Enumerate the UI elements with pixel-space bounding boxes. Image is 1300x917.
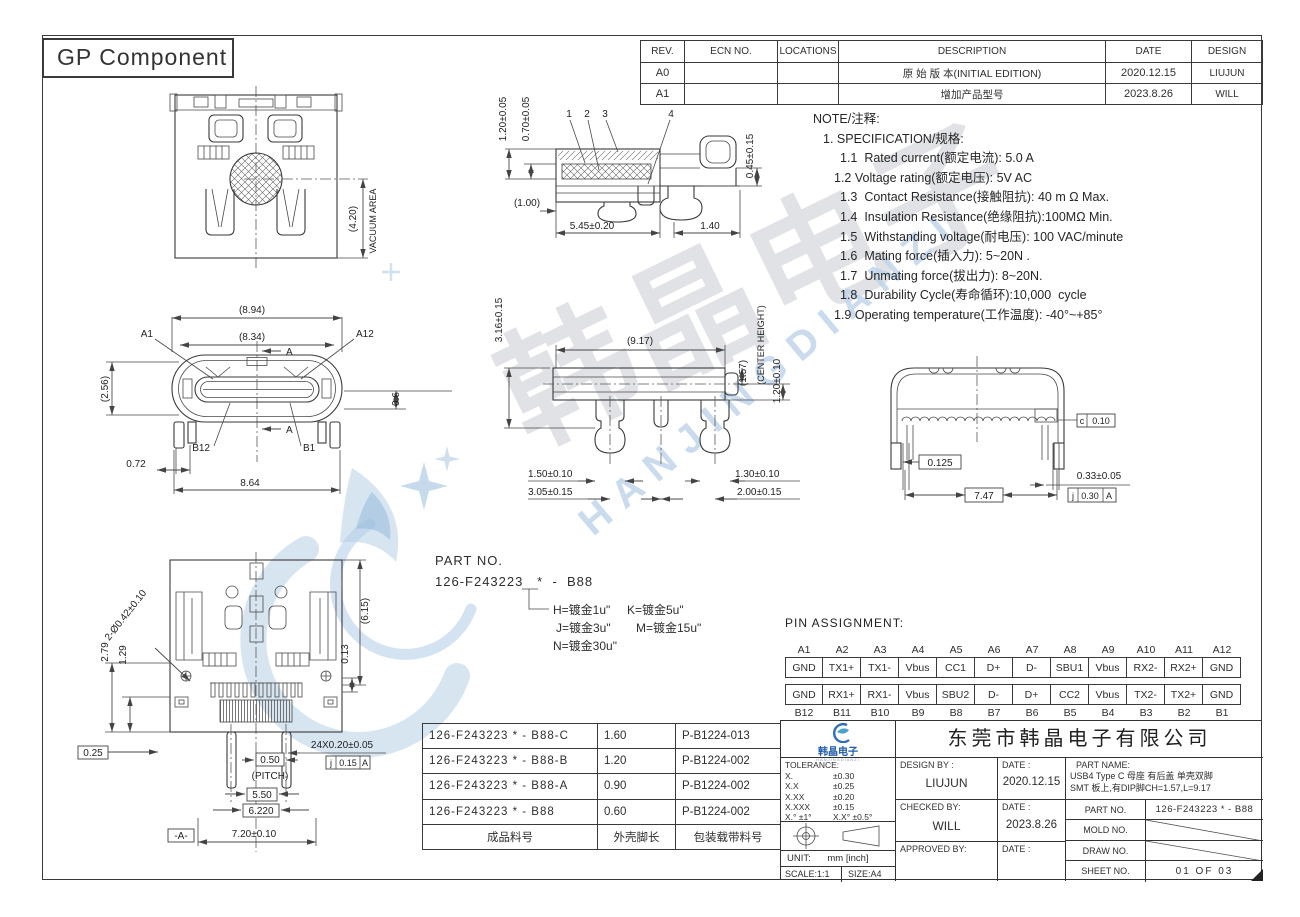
pin-cell: CC2 xyxy=(1051,684,1089,705)
approved-date-cell: DATE : xyxy=(998,841,1066,881)
design-value: LIUJUN xyxy=(1192,63,1263,84)
pin-cell: RX2+ xyxy=(1165,657,1203,678)
pin-cell: TX2+ xyxy=(1165,684,1203,705)
checked-by-cell: CHECKED BY: WILL xyxy=(896,799,998,841)
pin-cell: Vbus xyxy=(899,657,937,678)
material-part-no: 126-F243223 * - B88-B xyxy=(423,749,598,774)
ecn-value xyxy=(685,84,778,105)
sheet-no-label: SHEET NO. xyxy=(1066,861,1146,882)
pin-row-b-labels: B12B11B10B9B8B7B6B5B4B3B2B1 xyxy=(785,707,1243,720)
pin-b1-label: B1 xyxy=(303,443,316,454)
date-header: DATE xyxy=(1106,41,1192,63)
pin-label: A10 xyxy=(1127,644,1165,657)
dim-8-94: (8.94) xyxy=(239,305,265,316)
pin-a12-label: A12 xyxy=(356,329,374,340)
pin-label: A2 xyxy=(823,644,861,657)
dim-0-6: 0.6 xyxy=(391,392,402,406)
plating-option: H=镀金1u" xyxy=(553,601,610,618)
tol-value: ±0.25 xyxy=(833,781,854,791)
position-datum: A xyxy=(362,758,368,768)
callout-1: 1 xyxy=(566,109,572,120)
draw-no-label: DRAW NO. xyxy=(1066,841,1146,861)
revision-header-row: REV. ECN NO. LOCATIONS DESCRIPTION DATE … xyxy=(641,41,1263,63)
callout-2: 2 xyxy=(584,109,590,120)
note-item: 1.2 Voltage rating(额定电压): 5V AC xyxy=(813,169,1193,189)
design-value: WILL xyxy=(1192,84,1263,105)
dim-7-20: 7.20±0.10 xyxy=(232,829,277,840)
date-label: DATE : xyxy=(998,800,1065,812)
material-part-no: 126-F243223 * - B88-A xyxy=(423,774,598,799)
ecn-value xyxy=(685,63,778,84)
design-date-cell: DATE : 2020.12.15 xyxy=(998,758,1066,799)
top-view: (4.20) VACUUM AREA xyxy=(170,86,378,268)
dim-5-45: 5.45±0.20 xyxy=(570,221,615,232)
draw-no-blank xyxy=(1146,841,1263,861)
section-mark-top: A xyxy=(286,347,293,358)
part-no-row: PART NO. 126-F243223 * - B88 xyxy=(1066,799,1263,819)
scale-size-row: SCALE:1:1SIZE:A4 xyxy=(781,866,896,882)
design-by-value: LIUJUN xyxy=(896,776,997,790)
part-no-value: 126-F243223 * - B88 xyxy=(435,574,593,589)
tolerance-row: X.XXX±0.15 xyxy=(785,802,872,812)
company-name: 东莞市韩晶电子有限公司 xyxy=(896,721,1263,758)
dim-1-50: 1.50±0.10 xyxy=(528,469,573,480)
part-no-label: PART NO. xyxy=(435,553,593,568)
pin-cell: D- xyxy=(975,684,1013,705)
dim-2-56: (2.56) xyxy=(100,376,111,402)
ecn-header: ECN NO. xyxy=(685,41,778,63)
flatness-symbol: c xyxy=(1080,416,1085,426)
dim-5-50: 5.50 xyxy=(252,790,272,801)
pin-cell: TX1- xyxy=(861,657,899,678)
dim-8-34: (8.34) xyxy=(239,332,265,343)
design-by-cell: DESIGN BY : LIUJUN xyxy=(896,758,998,799)
plating-option: M=镀金15u" xyxy=(636,619,701,636)
position-value: 0.30 xyxy=(1081,491,1099,501)
dim-8-64: 8.64 xyxy=(240,478,260,489)
center-height-label: (CENTER HEIGHT) xyxy=(756,305,766,385)
locations-header: LOCATIONS xyxy=(778,41,839,63)
title-block: 韩晶电子 HANJINGDIANZI 东莞市韩晶电子有限公司 TOLERANCE… xyxy=(780,720,1262,880)
loc-value xyxy=(778,63,839,84)
date-label: DATE : xyxy=(998,842,1065,854)
note-item: 1.7 Unmating force(拔出力): 8~20N. xyxy=(813,267,1193,287)
pin-cell: CC1 xyxy=(937,657,975,678)
checked-date-value: 2023.8.26 xyxy=(998,819,1065,831)
pin-cell: D+ xyxy=(975,657,1013,678)
front-view: (8.94) (8.34) A1 A12 A A xyxy=(100,305,452,494)
approved-by-label: APPROVED BY: xyxy=(896,842,997,854)
pin-cell: GND xyxy=(785,657,823,678)
pitch-label: (PITCH) xyxy=(252,771,289,782)
pin-cell: GND xyxy=(1203,657,1241,678)
dim-0-72: 0.72 xyxy=(126,459,146,470)
pin-cell: Vbus xyxy=(1089,657,1127,678)
part-number-legend: PART NO. 126-F243223 * - B88 xyxy=(435,553,593,589)
pin-cell: GND xyxy=(1203,684,1241,705)
pin-label: A6 xyxy=(975,644,1013,657)
pin-label: A3 xyxy=(861,644,899,657)
pin-label: A5 xyxy=(937,644,975,657)
table-row: 126-F243223 * - B88-B 1.20 P-B1224-002 xyxy=(423,749,781,774)
dim-3-16: 3.16±0.15 xyxy=(494,297,505,342)
tolerance-label: TOLERANCE: xyxy=(785,760,839,770)
section-mark-bottom: A xyxy=(286,425,293,436)
page-title: GP Component xyxy=(42,38,234,78)
note-item: 1.9 Operating temperature(工作温度): -40°~+8… xyxy=(813,306,1193,326)
dim-1-29: 1.29 xyxy=(118,645,129,665)
table-row: A0 原 始 版 本(INITIAL EDITION) 2020.12.15 L… xyxy=(641,63,1263,84)
dim-2-79: 2.79 xyxy=(100,642,111,662)
date-value: 2023.8.26 xyxy=(1106,84,1192,105)
pin-label: B8 xyxy=(937,707,975,720)
part-no-value: 126-F243223 * - B88 xyxy=(1146,800,1263,820)
pin-cell: D- xyxy=(1013,657,1051,678)
dim-0-125: 0.125 xyxy=(927,458,952,469)
company-logo-icon xyxy=(781,721,896,743)
tol-label: X. xyxy=(785,771,833,781)
pin-assignment-block: PIN ASSIGNMENT: A1A2A3A4A5A6A7A8A9A10A11… xyxy=(785,616,1243,720)
material-part-no: 126-F243223 * - B88 xyxy=(423,799,598,824)
material-table: 126-F243223 * - B88-C 1.60 P-B1224-013 1… xyxy=(422,723,781,850)
draw-no-row: DRAW NO. xyxy=(1066,840,1263,860)
pin-label: B1 xyxy=(1203,707,1241,720)
drawing-sheet: 韩晶电子 HANJINGDIANZI GP Component REV. ECN… xyxy=(0,0,1300,917)
loc-value xyxy=(778,84,839,105)
dim-0-45: 0.45±0.15 xyxy=(745,133,756,178)
part-name-line1: USB4 Type C 母座 有后盖 单壳双脚 xyxy=(1066,770,1263,782)
note-item: 1.4 Insulation Resistance(绝缘阻抗):100MΩ Mi… xyxy=(813,208,1193,228)
pin-label: B3 xyxy=(1127,707,1165,720)
vacuum-area-circle xyxy=(230,153,282,205)
pin-cell: SBU1 xyxy=(1051,657,1089,678)
pin-label: A9 xyxy=(1089,644,1127,657)
plating-option: N=镀金30u" xyxy=(553,637,617,654)
material-leg-length: 0.90 xyxy=(598,774,676,799)
rev-value: A1 xyxy=(641,84,685,105)
plating-option: K=镀金5u" xyxy=(627,601,684,618)
dim-1-40: 1.40 xyxy=(700,221,720,232)
table-row: 126-F243223 * - B88 0.60 P-B1224-002 xyxy=(423,799,781,824)
material-tape-no: P-B1224-002 xyxy=(676,749,781,774)
sheet-no-value: 01 OF 03 xyxy=(1146,861,1263,882)
dim-9-17: (9.17) xyxy=(627,336,653,347)
part-name-line2: SMT 板上,有DIP脚CH=1.57,L=9.17 xyxy=(1066,782,1263,794)
table-row: 126-F243223 * - B88-C 1.60 P-B1224-013 xyxy=(423,724,781,749)
position-symbol: j xyxy=(329,758,332,768)
rev-header: REV. xyxy=(641,41,685,63)
pin-a1-label: A1 xyxy=(141,329,154,340)
unit-value: mm [inch] xyxy=(813,853,868,864)
pin-cell: TX1+ xyxy=(823,657,861,678)
pin-label: A11 xyxy=(1165,644,1203,657)
section-aa-view: 3.16±0.15 (9.17) (1.57) (CENTER HEIGHT) … xyxy=(494,297,800,499)
dim-1-30: 1.30±0.10 xyxy=(735,469,780,480)
pin-label: B10 xyxy=(861,707,899,720)
dim-24x: 24X0.20±0.05 xyxy=(311,740,374,751)
pin-label: B12 xyxy=(785,707,823,720)
date-value: 2020.12.15 xyxy=(1106,63,1192,84)
description-header: DESCRIPTION xyxy=(839,41,1106,63)
vacuum-area-label: VACUUM AREA xyxy=(368,189,378,254)
dim-0-50: 0.50 xyxy=(260,755,280,766)
pin-cell: D+ xyxy=(1013,684,1051,705)
pin-label: B9 xyxy=(899,707,937,720)
material-tape-no: P-B1224-013 xyxy=(676,724,781,749)
pin-cell: RX2- xyxy=(1127,657,1165,678)
pin-label: B2 xyxy=(1165,707,1203,720)
unit-label: UNIT: xyxy=(781,853,811,864)
note-item: 1.1 Rated current(额定电流): 5.0 A xyxy=(813,149,1193,169)
material-leg-length: 1.20 xyxy=(598,749,676,774)
part-name-cell: PART NAME: USB4 Type C 母座 有后盖 单壳双脚 SMT 板… xyxy=(1066,758,1263,799)
unit-cell: UNIT: mm [inch] xyxy=(781,850,896,867)
material-footer: 成品料号 xyxy=(423,824,598,849)
note-item: 1.3 Contact Resistance(接触阻抗): 40 m Ω Max… xyxy=(813,188,1193,208)
pin-label: B11 xyxy=(823,707,861,720)
material-leg-length: 1.60 xyxy=(598,724,676,749)
checked-date-cell: DATE : 2023.8.26 xyxy=(998,799,1066,841)
material-footer: 外壳脚长 xyxy=(598,824,676,849)
material-tape-no: P-B1224-002 xyxy=(676,799,781,824)
material-part-no: 126-F243223 * - B88-C xyxy=(423,724,598,749)
tol-label: X.X xyxy=(785,781,833,791)
dim-1-20: 1.20±0.05 xyxy=(498,96,509,141)
rev-value: A0 xyxy=(641,63,685,84)
pin-label: B7 xyxy=(975,707,1013,720)
pin-label: B4 xyxy=(1089,707,1127,720)
pin-row-b: GNDRX1+RX1-VbusSBU2D-D+CC2VbusTX2-TX2+GN… xyxy=(785,684,1243,705)
note-item: 1.6 Mating force(插入力): 5~20N . xyxy=(813,247,1193,267)
pin-label: A4 xyxy=(899,644,937,657)
revision-table: REV. ECN NO. LOCATIONS DESCRIPTION DATE … xyxy=(640,40,1263,105)
pin-row-a-labels: A1A2A3A4A5A6A7A8A9A10A11A12 xyxy=(785,644,1243,657)
tolerance-column: TOLERANCE: X.±0.30 X.X±0.25 X.XX±0.20 X.… xyxy=(781,758,896,881)
dim-3-05: 3.05±0.15 xyxy=(528,487,573,498)
checked-by-value: WILL xyxy=(896,819,997,833)
mold-no-blank xyxy=(1146,820,1263,841)
approved-by-cell: APPROVED BY: xyxy=(896,841,998,881)
pin-b12-label: B12 xyxy=(192,443,210,454)
notes-block: NOTE/注释: 1. SPECIFICATION/规格: 1.1 Rated … xyxy=(813,110,1193,326)
rear-view: c 0.10 0.125 7.47 0.33±0.05 j 0.30 A xyxy=(891,356,1130,502)
pin-label: A12 xyxy=(1203,644,1241,657)
pin-cell: RX1+ xyxy=(823,684,861,705)
design-header: DESIGN xyxy=(1192,41,1263,63)
dim-1-00: (1.00) xyxy=(514,198,540,209)
pin-label: B5 xyxy=(1051,707,1089,720)
dim-7-47: 7.47 xyxy=(974,491,994,502)
checked-by-label: CHECKED BY: xyxy=(896,800,997,812)
dim-0-70: 0.70±0.05 xyxy=(521,96,532,141)
pin-cell: RX1- xyxy=(861,684,899,705)
tol-value: ±0.20 xyxy=(833,792,854,802)
pin-cell: Vbus xyxy=(1089,684,1127,705)
dim-6-15: (6.15) xyxy=(360,598,371,624)
table-row: 126-F243223 * - B88-A 0.90 P-B1224-002 xyxy=(423,774,781,799)
desc-value: 增加产品型号 xyxy=(839,84,1106,105)
pin-label: A7 xyxy=(1013,644,1051,657)
pin-assignment-title: PIN ASSIGNMENT: xyxy=(785,616,1243,630)
tolerance-row: X.XX±0.20 xyxy=(785,792,872,802)
tol-label: X.XXX xyxy=(785,802,833,812)
pin-cell: Vbus xyxy=(899,684,937,705)
projection-cell xyxy=(781,821,896,851)
dim-0-25: 0.25 xyxy=(83,748,103,759)
dim-0-33: 0.33±0.05 xyxy=(1077,471,1122,482)
tolerance-row: X.X±0.25 xyxy=(785,781,872,791)
dim-1-20-aa: 1.20±0.10 xyxy=(772,358,783,403)
sheet-corner-mark xyxy=(1251,869,1263,881)
table-row: A1 增加产品型号 2023.8.26 WILL xyxy=(641,84,1263,105)
date-label: DATE : xyxy=(998,758,1065,770)
notes-title: NOTE/注释: xyxy=(813,110,1193,130)
size-value: SIZE:A4 xyxy=(842,869,882,879)
dim-hole: 2-Ø0.42±0.10 xyxy=(103,588,150,643)
pin-row-a: GNDTX1+TX1-VbusCC1D+D-SBU1VbusRX2-RX2+GN… xyxy=(785,657,1243,678)
datum-a-label: -A- xyxy=(174,831,187,842)
material-tape-no: P-B1224-002 xyxy=(676,774,781,799)
scale-value: SCALE:1:1 xyxy=(781,867,842,882)
first-angle-projection-icon xyxy=(781,822,896,851)
plating-option: J=镀金3u" xyxy=(556,619,611,636)
material-footer: 包装载带料号 xyxy=(676,824,781,849)
note-item: 1.8 Durability Cycle(寿命循环):10,000 cycle xyxy=(813,286,1193,306)
part-name-label: PART NAME: xyxy=(1066,758,1263,770)
part-legend-bracket xyxy=(522,589,549,609)
material-leg-length: 0.60 xyxy=(598,799,676,824)
side-section-view: 1 2 3 4 1.20±0.05 0.70±0.05 0.45±0.15 xyxy=(498,96,762,238)
notes-spec-title: 1. SPECIFICATION/规格: xyxy=(813,130,1193,150)
pin-label: A8 xyxy=(1051,644,1089,657)
callout-3: 3 xyxy=(602,109,608,120)
design-date-value: 2020.12.15 xyxy=(998,776,1065,788)
mold-no-label: MOLD NO. xyxy=(1066,820,1146,841)
part-no-label: PART NO. xyxy=(1066,800,1146,820)
position-datum: A xyxy=(1106,491,1112,501)
company-logo-cell: 韩晶电子 HANJINGDIANZI xyxy=(781,721,896,758)
bottom-view: 2-Ø0.42±0.10 2.79 1.29 (6.15) 0.13 0.25 … xyxy=(78,552,386,852)
flatness-value: 0.10 xyxy=(1092,416,1110,426)
tol-label: X.XX xyxy=(785,792,833,802)
sheet-no-row: SHEET NO. 01 OF 03 xyxy=(1066,860,1263,881)
position-value: 0.15 xyxy=(339,758,357,768)
dim-1-57: (1.57) xyxy=(738,360,749,386)
dim-0-13: 0.13 xyxy=(340,644,351,664)
pin-cell: SBU2 xyxy=(937,684,975,705)
callout-4: 4 xyxy=(668,109,674,120)
material-footer-row: 成品料号 外壳脚长 包装载带料号 xyxy=(423,824,781,849)
pin-label: B6 xyxy=(1013,707,1051,720)
tol-value: ±0.15 xyxy=(833,802,854,812)
tol-value: ±0.30 xyxy=(833,771,854,781)
desc-value: 原 始 版 本(INITIAL EDITION) xyxy=(839,63,1106,84)
dim-2-00: 2.00±0.15 xyxy=(737,487,782,498)
pin-cell: GND xyxy=(785,684,823,705)
logo-text: 韩晶电子 xyxy=(781,748,895,757)
pin-cell: TX2- xyxy=(1127,684,1165,705)
design-by-label: DESIGN BY : xyxy=(896,758,997,770)
mold-no-row: MOLD NO. xyxy=(1066,819,1263,840)
position-symbol: j xyxy=(1071,491,1074,501)
tolerance-row: X.±0.30 xyxy=(785,771,872,781)
dim-6-220: 6.220 xyxy=(248,806,273,817)
dim-vacuum-height: (4.20) xyxy=(348,206,359,232)
pin-label: A1 xyxy=(785,644,823,657)
note-item: 1.5 Withstanding voltage(耐电压): 100 VAC/m… xyxy=(813,228,1193,248)
